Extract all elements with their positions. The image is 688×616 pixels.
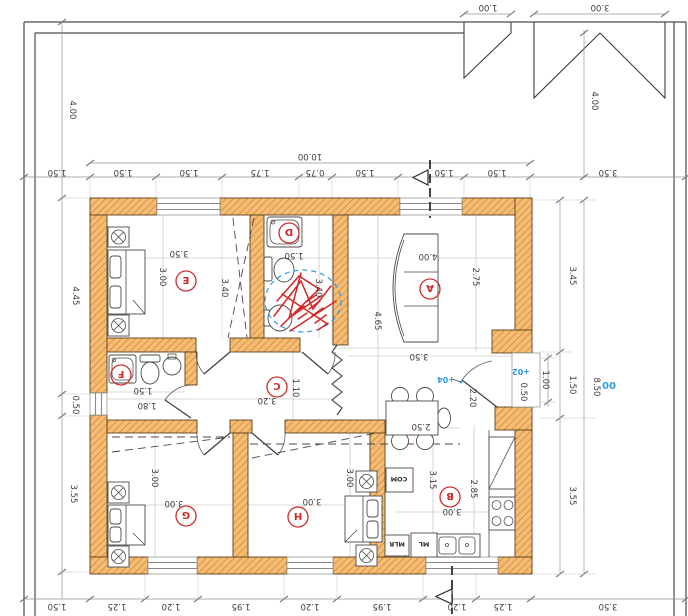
label-dryer: MLR [389, 540, 405, 548]
dim-top: 1.50 [114, 167, 133, 177]
dim-bottom: 3.50 [599, 601, 618, 611]
dim-room-h: 3.00 [344, 469, 354, 488]
dim-right: 4.00 [589, 92, 599, 111]
elevation-porch: +02 [512, 367, 530, 376]
dim-room-e: 3.00 [157, 268, 167, 287]
dim-top: 1.50 [435, 167, 454, 177]
dim-top: 1.75 [251, 167, 270, 177]
dim-room-f: 1.50 [134, 385, 153, 395]
dim-room-d: 1.50 [285, 250, 304, 260]
dim-top: 1.50 [356, 167, 375, 177]
room-label-h: H [288, 507, 308, 527]
dim-top: 1.50 [180, 167, 199, 177]
dim-bottom: 1.25 [494, 601, 513, 611]
svg-text:C: C [273, 380, 280, 391]
dim-room-a: 2.75 [470, 268, 480, 287]
room-label-g: G [176, 506, 196, 526]
dim-top: 0.75 [306, 167, 325, 177]
dim-bottom: 1.20 [301, 601, 320, 611]
dim-room-g: 3.00 [149, 469, 159, 488]
dim-bottom: 1.25 [108, 601, 127, 611]
svg-text:G: G [182, 509, 190, 520]
label-washer: ML [419, 540, 430, 548]
dim-left: 3.55 [68, 485, 78, 504]
wall-break-zigzag [332, 345, 342, 415]
dim-room-e: 3.50 [170, 248, 189, 258]
dim-top: 1.50 [48, 167, 67, 177]
dim-bottom: 1.95 [232, 601, 251, 611]
site-dim: 1.00 [479, 2, 498, 12]
dim-room-e: 3.40 [219, 279, 229, 298]
bed-room-g [108, 482, 145, 567]
dim-room-b: 2.50 [412, 421, 431, 431]
dim-room-c: 1.10 [290, 379, 300, 398]
dim-room-b: 3.00 [443, 506, 462, 516]
site-dim: 3.00 [591, 2, 610, 12]
floor-plan-page: 1.00 3.00 [0, 0, 688, 616]
floor-plan-drawing: 1.00 3.00 [0, 0, 688, 616]
svg-text:H: H [294, 510, 302, 521]
dim-bottom: 1.95 [373, 601, 392, 611]
dim-right-overall: 8.50 [591, 378, 601, 397]
dim-left: 0.50 [70, 396, 80, 415]
walls [90, 198, 532, 574]
dim-room-d: 3.40 [313, 279, 323, 298]
room-label-c: C [267, 377, 287, 397]
dim-room-a: 4.00 [419, 251, 438, 261]
dim-top: 1.50 [488, 167, 507, 177]
dim-room-b: 2.85 [468, 480, 478, 499]
dim-room-g: 3.00 [165, 498, 184, 508]
dim-porch: 2.20 [467, 389, 477, 408]
svg-text:A: A [426, 282, 434, 293]
windows [90, 198, 540, 574]
roof-gable-large [534, 22, 665, 98]
dim-room-a: 4.65 [372, 312, 382, 331]
svg-text:D: D [285, 226, 293, 237]
dim-porch: 1.00 [540, 371, 550, 390]
svg-text:B: B [446, 490, 454, 501]
dim-bottom: 1.20 [162, 601, 181, 611]
doors [165, 352, 497, 455]
label-freezer: COM [391, 475, 408, 483]
dim-room-h: 3.00 [303, 496, 322, 506]
roof-gable-small [464, 22, 511, 78]
dim-room-f: 1.80 [138, 400, 157, 410]
dim-bottom: 1.50 [48, 601, 67, 611]
dim-right: 3.45 [567, 267, 577, 286]
dim-left: 4.00 [67, 101, 77, 120]
svg-text:E: E [182, 274, 189, 285]
room-label-e: E [176, 271, 196, 291]
dim-left: 4.45 [70, 287, 80, 306]
svg-text:F: F [118, 368, 125, 379]
dim-room-b: 3.15 [427, 471, 437, 490]
bed-room-e [108, 227, 145, 336]
dim-right: 1.50 [567, 376, 577, 395]
dim-top: 3.50 [599, 167, 618, 177]
dim-porch: 0.50 [518, 383, 528, 402]
dim-bottom: 1.20 [448, 601, 467, 611]
elevation-ground: 00 [602, 379, 616, 390]
red-scribble-annotation [265, 270, 341, 332]
dim-right: 3.55 [567, 487, 577, 506]
room-label-b: B [440, 487, 460, 507]
elevation-entry: +04 [437, 375, 455, 384]
entry-arrow-icon [413, 170, 428, 185]
bathroom-fixtures [264, 217, 302, 331]
dim-overall-width: 10.00 [298, 151, 322, 161]
dim-room-a: 3.50 [410, 351, 429, 361]
dining-table [386, 388, 451, 450]
